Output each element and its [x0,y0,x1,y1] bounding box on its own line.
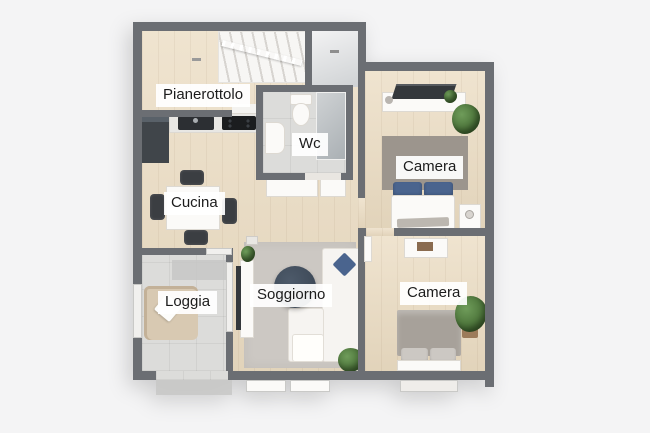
room-label-camera-top: Camera [396,156,463,179]
loggia-outdoor-mat [156,380,232,395]
floorplan: Pianerottolo Wc Camera Cucina Soggiorno … [0,0,650,433]
wall-wc-west [256,85,263,180]
kitchen-chair-bottom [184,230,208,245]
wall-right [485,62,494,387]
wall-camera-top [358,62,494,71]
living-tv-screen [236,266,241,330]
window-sill-south-1 [246,380,286,392]
cooktop [222,116,256,130]
camera2-door-leaf [364,236,372,262]
window-sill-south-2 [290,380,330,392]
wall-pianerottolo-south [133,110,232,117]
desk-item [417,242,433,251]
nightstand-lamp [465,210,474,219]
wc-door-opening [305,173,341,180]
floor-closet [312,31,358,87]
window-loggia-east [226,262,233,332]
toilet-bowl [292,103,310,126]
kitchen-chair-top [180,170,204,185]
wc-sink [265,122,285,154]
room-label-pianerottolo: Pianerottolo [156,84,250,107]
kitchen-faucet [193,118,198,123]
wall-wc-north [256,85,353,92]
window-cucina-loggia [206,248,232,255]
room-label-camera-bottom: Camera [400,282,467,305]
closet-door-mark [330,50,339,53]
door-mark [192,58,201,61]
room-label-cucina: Cucina [164,192,225,215]
wall-wc-east [346,85,353,180]
bed-fold [397,217,449,228]
room-label-soggiorno: Soggiorno [250,284,332,307]
wall-top [133,22,366,31]
camera2-door-opening [366,228,394,236]
bed2-headboard [397,360,461,371]
wall-cucina-loggia [133,248,206,255]
wall-deco-frame [246,236,258,245]
window-loggia-west [133,284,142,338]
loggia-doormat [172,260,228,280]
loggia-south-opening [156,371,228,380]
sofa-cushion [292,334,324,362]
window-sill-camera2 [400,380,458,392]
decor-vase [385,96,393,104]
room-label-wc: Wc [292,133,328,156]
fridge-tall-unit [141,113,169,163]
wall-closet-left [305,22,312,92]
kitchen-chair-left [150,194,165,220]
floorplan-canvas: Pianerottolo Wc Camera Cucina Soggiorno … [0,0,650,433]
room-label-loggia: Loggia [158,291,217,314]
camera-door-opening [358,198,365,228]
